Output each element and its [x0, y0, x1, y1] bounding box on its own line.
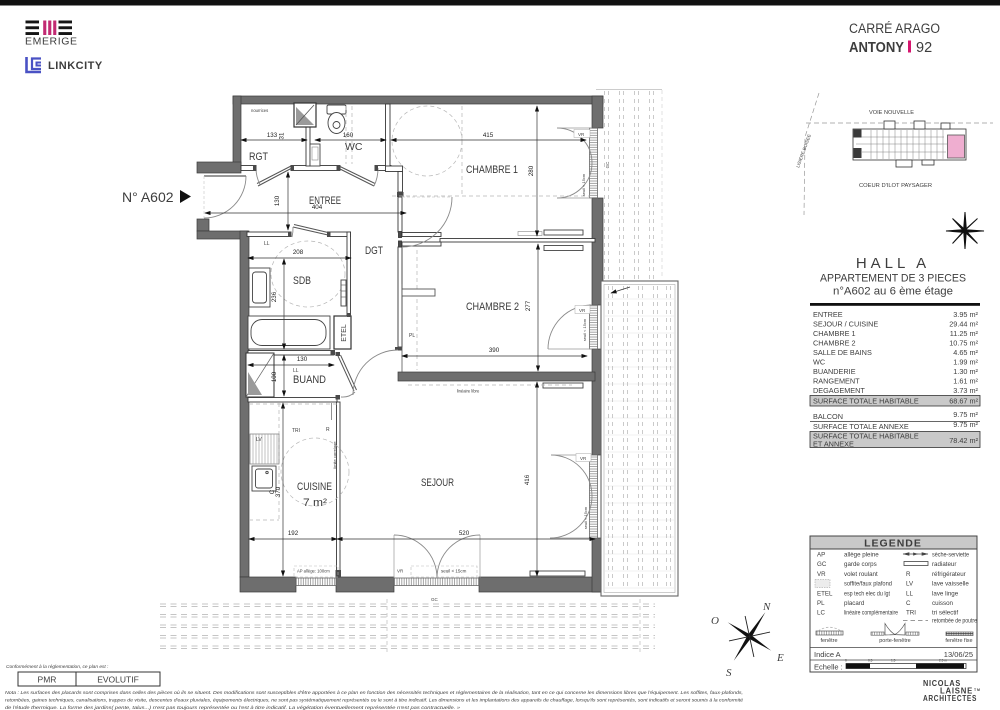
- svg-text:WC: WC: [345, 141, 363, 153]
- svg-text:29.44 m²: 29.44 m²: [949, 320, 978, 329]
- svg-text:LINKCITY: LINKCITY: [48, 60, 103, 72]
- svg-text:CARRÉ ARAGO: CARRÉ ARAGO: [849, 21, 940, 36]
- svg-text:lave vaisselle: lave vaisselle: [932, 581, 969, 588]
- svg-text:ARCHITECTES: ARCHITECTES: [923, 694, 977, 703]
- svg-text:390: 390: [489, 347, 500, 354]
- svg-text:ENTREE: ENTREE: [309, 195, 341, 207]
- svg-text:cuisson: cuisson: [932, 600, 954, 607]
- svg-text:esp tech elec du lgt: esp tech elec du lgt: [844, 590, 890, 597]
- svg-text:520: 520: [459, 530, 470, 537]
- svg-text:radiateur: radiateur: [932, 561, 956, 568]
- svg-text:VR: VR: [817, 571, 826, 578]
- svg-text:LV: LV: [256, 437, 262, 443]
- svg-text:0: 0: [845, 659, 847, 663]
- svg-text:415: 415: [483, 132, 494, 139]
- svg-text:LL: LL: [264, 241, 270, 247]
- svg-text:13/06/25: 13/06/25: [944, 650, 973, 659]
- svg-text:ETEL: ETEL: [817, 590, 833, 597]
- svg-text:APPARTEMENT DE 3 PIECES: APPARTEMENT DE 3 PIECES: [820, 273, 966, 285]
- svg-text:VR: VR: [397, 569, 404, 574]
- svg-text:AP allège: 100cm: AP allège: 100cm: [297, 569, 330, 574]
- svg-text:BUAND: BUAND: [293, 374, 326, 386]
- svg-text:PL: PL: [409, 333, 415, 339]
- svg-text:130: 130: [274, 195, 281, 206]
- svg-text:192: 192: [288, 530, 299, 537]
- svg-text:VR: VR: [578, 132, 585, 137]
- svg-text:nourrices: nourrices: [251, 108, 268, 113]
- svg-text:RGT: RGT: [249, 151, 268, 163]
- svg-text:retombées, gaines techniques,: retombées, gaines techniques, canalisati…: [5, 698, 743, 704]
- svg-text:SURFACE TOTALE ANNEXE: SURFACE TOTALE ANNEXE: [813, 422, 909, 431]
- svg-text:ENTREE: ENTREE: [813, 310, 843, 319]
- svg-text:E: E: [776, 652, 784, 664]
- svg-text:C: C: [906, 600, 911, 607]
- svg-text:tri sélectif: tri sélectif: [932, 610, 958, 617]
- svg-text:CHAMBRE 2: CHAMBRE 2: [813, 339, 856, 348]
- svg-text:SURFACE TOTALE HABITABLE: SURFACE TOTALE HABITABLE: [813, 397, 919, 406]
- svg-text:N: N: [762, 601, 771, 613]
- svg-text:fenêtre fixe: fenêtre fixe: [945, 638, 972, 644]
- svg-text:C: C: [269, 489, 276, 494]
- svg-text:1.61 m²: 1.61 m²: [953, 377, 978, 386]
- svg-text:BUANDERIE: BUANDERIE: [813, 367, 856, 376]
- svg-text:ET ANNEXE: ET ANNEXE: [813, 440, 854, 449]
- svg-text:2.5 m: 2.5 m: [939, 659, 947, 663]
- svg-text:4.65 m²: 4.65 m²: [953, 348, 978, 357]
- svg-text:porte-fenêtre: porte-fenêtre: [879, 638, 911, 644]
- svg-text:0.5: 0.5: [868, 659, 873, 663]
- svg-text:n°A602 au 6 ème étage: n°A602 au 6 ème étage: [833, 286, 953, 298]
- svg-text:seuil < 15cm: seuil < 15cm: [582, 318, 587, 341]
- svg-text:GC: GC: [817, 561, 827, 568]
- svg-text:S: S: [726, 667, 732, 679]
- svg-text:CHAMBRE 1: CHAMBRE 1: [466, 164, 518, 176]
- svg-text:DGT: DGT: [365, 245, 383, 257]
- svg-text:sèche-serviette: sèche-serviette: [932, 552, 969, 559]
- svg-text:fenêtre: fenêtre: [820, 638, 837, 644]
- svg-text:100: 100: [271, 371, 278, 382]
- svg-text:CHAMBRE 1: CHAMBRE 1: [813, 329, 856, 338]
- svg-text:SALLE DE BAINS: SALLE DE BAINS: [813, 348, 872, 357]
- svg-text:volet roulant: volet roulant: [844, 571, 878, 578]
- svg-text:3.95 m²: 3.95 m²: [953, 310, 978, 319]
- svg-text:SEJOUR: SEJOUR: [421, 477, 454, 489]
- svg-text:78.42 m²: 78.42 m²: [949, 436, 978, 445]
- svg-text:92: 92: [916, 40, 932, 56]
- svg-text:280: 280: [528, 165, 535, 176]
- svg-text:Echelle :: Echelle :: [814, 663, 843, 672]
- svg-text:placard: placard: [844, 600, 865, 607]
- svg-text:LL: LL: [906, 590, 913, 597]
- svg-text:garde corps: garde corps: [844, 561, 877, 568]
- svg-text:limite carrelage: limite carrelage: [332, 441, 337, 469]
- svg-text:277: 277: [525, 300, 532, 311]
- svg-text:RANGEMENT: RANGEMENT: [813, 377, 860, 386]
- svg-text:VOIE NOUVELLE: VOIE NOUVELLE: [869, 110, 914, 116]
- svg-text:linéaire libre: linéaire libre: [457, 389, 480, 394]
- svg-text:TM: TM: [974, 688, 981, 692]
- svg-text:O: O: [711, 615, 719, 627]
- svg-text:9.75 m²: 9.75 m²: [953, 410, 978, 419]
- svg-text:Indice A: Indice A: [814, 650, 841, 659]
- svg-text:HALL A: HALL A: [856, 255, 930, 272]
- svg-text:réfrigérateur: réfrigérateur: [932, 571, 966, 578]
- svg-text:ANTONY: ANTONY: [849, 40, 904, 56]
- svg-text:seuil < 15cm: seuil < 15cm: [583, 506, 588, 529]
- svg-text:Conformément à la réglementati: Conformément à la réglementation, ce pla…: [6, 664, 109, 670]
- svg-text:LC: LC: [817, 610, 825, 617]
- svg-text:TRI: TRI: [906, 610, 916, 617]
- svg-text:EMERIGE: EMERIGE: [25, 36, 78, 48]
- svg-text:VR: VR: [579, 308, 586, 313]
- svg-text:soffite/faux plafond: soffite/faux plafond: [844, 581, 893, 588]
- svg-text:370: 370: [275, 486, 282, 497]
- svg-text:WC: WC: [813, 358, 825, 367]
- svg-text:68.67 m²: 68.67 m²: [949, 397, 978, 406]
- svg-text:LL: LL: [293, 368, 299, 374]
- svg-text:CUISINE: CUISINE: [297, 481, 332, 493]
- svg-text:N° A602: N° A602: [122, 189, 174, 205]
- svg-text:R: R: [906, 571, 911, 578]
- svg-text:AP: AP: [817, 552, 825, 559]
- svg-text:1.5: 1.5: [891, 659, 896, 663]
- svg-text:LEGENDE: LEGENDE: [864, 538, 922, 550]
- svg-text:retombée de poutre: retombée de poutre: [932, 617, 977, 624]
- svg-text:linéaire complémentaire: linéaire complémentaire: [844, 610, 898, 617]
- svg-text:BALCON: BALCON: [813, 412, 843, 421]
- svg-text:10.75 m²: 10.75 m²: [949, 339, 978, 348]
- svg-text:1.30 m²: 1.30 m²: [953, 367, 978, 376]
- svg-text:TRI: TRI: [292, 428, 300, 434]
- svg-text:11.25 m²: 11.25 m²: [950, 329, 979, 338]
- svg-text:GC: GC: [605, 161, 610, 169]
- svg-text:seuil < 15cm: seuil < 15cm: [441, 569, 467, 574]
- svg-text:CHAMBRE 2: CHAMBRE 2: [466, 301, 519, 313]
- svg-text:allège pleine: allège pleine: [844, 552, 879, 559]
- svg-text:160: 160: [343, 132, 354, 139]
- svg-text:EVOLUTIF: EVOLUTIF: [97, 675, 139, 685]
- svg-text:R: R: [326, 427, 330, 433]
- svg-text:seuil < 15cm: seuil < 15cm: [581, 173, 586, 196]
- svg-text:7 m²: 7 m²: [303, 497, 327, 509]
- svg-text:PL: PL: [817, 600, 825, 607]
- svg-text:236: 236: [271, 291, 278, 302]
- svg-text:208: 208: [293, 249, 304, 256]
- svg-text:LV: LV: [906, 581, 914, 588]
- svg-text:GC: GC: [431, 597, 439, 602]
- svg-text:ETEL: ETEL: [341, 324, 348, 342]
- svg-text:133: 133: [267, 132, 278, 139]
- svg-text:31: 31: [279, 132, 286, 139]
- svg-text:DEGAGEMENT: DEGAGEMENT: [813, 386, 865, 395]
- svg-text:COEUR D'ILOT PAYSAGER: COEUR D'ILOT PAYSAGER: [859, 183, 932, 189]
- svg-text:SDB: SDB: [293, 275, 311, 287]
- svg-text:VR: VR: [580, 456, 587, 461]
- svg-text:PMR: PMR: [38, 675, 57, 685]
- svg-text:9.75 m²: 9.75 m²: [953, 420, 978, 429]
- svg-text:de l'étude thermique. La forme: de l'étude thermique. La forme des jardi…: [5, 705, 460, 710]
- svg-text:3.73 m²: 3.73 m²: [953, 386, 978, 395]
- svg-text:416: 416: [524, 474, 531, 485]
- svg-text:lave linge: lave linge: [932, 590, 959, 597]
- svg-text:130: 130: [297, 356, 308, 363]
- svg-text:Nota : Les surfaces des placar: Nota : Les surfaces des placards sont co…: [5, 690, 743, 696]
- svg-text:SEJOUR / CUISINE: SEJOUR / CUISINE: [813, 320, 878, 329]
- svg-text:1.99 m²: 1.99 m²: [953, 358, 978, 367]
